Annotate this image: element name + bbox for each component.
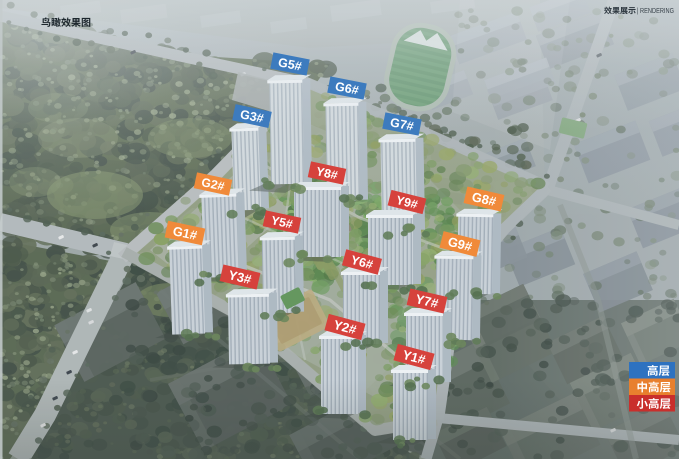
- svg-text:| RENDERING: | RENDERING: [637, 8, 674, 15]
